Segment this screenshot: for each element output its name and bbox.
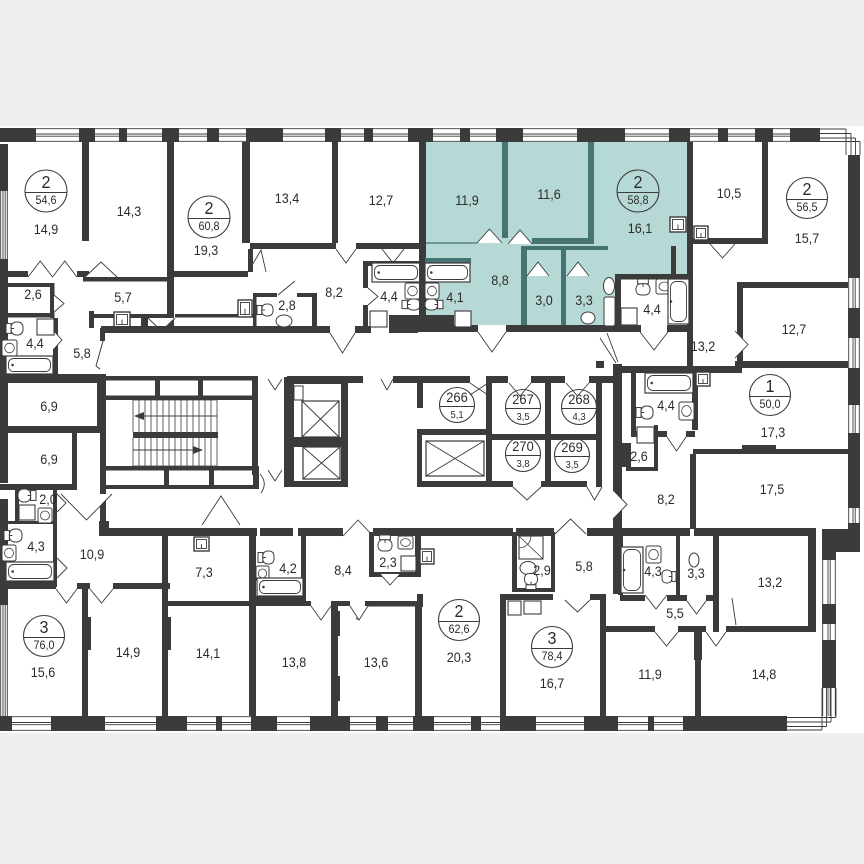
svg-text:12,7: 12,7: [369, 192, 393, 208]
svg-text:12,7: 12,7: [782, 321, 806, 337]
svg-text:11,9: 11,9: [638, 666, 662, 682]
svg-text:2: 2: [455, 601, 464, 621]
svg-text:62,6: 62,6: [448, 624, 469, 637]
svg-text:17,5: 17,5: [760, 481, 784, 497]
svg-text:4,2: 4,2: [279, 560, 297, 576]
svg-text:14,9: 14,9: [34, 221, 58, 237]
svg-text:4,4: 4,4: [380, 288, 398, 304]
svg-text:1: 1: [766, 376, 775, 396]
svg-text:2,8: 2,8: [278, 297, 296, 313]
svg-text:2,9: 2,9: [533, 562, 551, 578]
svg-text:76,0: 76,0: [33, 640, 54, 653]
svg-text:267: 267: [512, 392, 533, 408]
svg-text:3,3: 3,3: [575, 292, 593, 308]
svg-text:13,6: 13,6: [364, 654, 388, 670]
svg-text:15,6: 15,6: [31, 664, 55, 680]
svg-text:8,4: 8,4: [334, 562, 352, 578]
svg-text:13,4: 13,4: [275, 190, 299, 206]
svg-text:14,1: 14,1: [196, 645, 220, 661]
svg-text:58,8: 58,8: [627, 195, 648, 208]
svg-text:2,6: 2,6: [630, 448, 648, 464]
svg-text:7,3: 7,3: [195, 564, 213, 580]
svg-text:13,2: 13,2: [758, 574, 782, 590]
svg-text:4,4: 4,4: [26, 335, 44, 351]
svg-text:2,0: 2,0: [39, 491, 57, 507]
svg-text:14,3: 14,3: [117, 203, 141, 219]
svg-text:5,8: 5,8: [575, 558, 593, 574]
svg-text:8,2: 8,2: [325, 284, 343, 300]
svg-text:5,5: 5,5: [666, 605, 684, 621]
svg-text:2,3: 2,3: [379, 554, 397, 570]
svg-text:50,0: 50,0: [759, 399, 780, 412]
svg-text:3,5: 3,5: [516, 412, 530, 424]
svg-text:5,1: 5,1: [450, 410, 464, 422]
svg-text:13,8: 13,8: [282, 654, 306, 670]
svg-text:11,6: 11,6: [537, 186, 561, 202]
svg-text:4,3: 4,3: [27, 538, 45, 554]
svg-text:2: 2: [205, 198, 214, 218]
svg-text:270: 270: [512, 439, 533, 455]
svg-text:4,3: 4,3: [644, 563, 662, 579]
svg-text:16,7: 16,7: [540, 675, 564, 691]
svg-text:4,4: 4,4: [657, 397, 675, 413]
svg-text:3,5: 3,5: [565, 460, 579, 472]
svg-text:10,9: 10,9: [80, 546, 104, 562]
svg-text:3: 3: [40, 617, 49, 637]
svg-text:20,3: 20,3: [447, 649, 471, 665]
svg-text:269: 269: [561, 440, 582, 456]
svg-text:13,2: 13,2: [691, 338, 715, 354]
svg-text:78,4: 78,4: [541, 651, 563, 664]
svg-text:2,6: 2,6: [24, 286, 42, 302]
svg-text:6,9: 6,9: [40, 451, 58, 467]
svg-text:10,5: 10,5: [717, 185, 741, 201]
svg-text:5,8: 5,8: [73, 345, 91, 361]
svg-text:4,1: 4,1: [446, 289, 464, 305]
svg-text:2: 2: [42, 172, 51, 192]
svg-text:11,9: 11,9: [455, 192, 479, 208]
svg-text:8,2: 8,2: [657, 491, 675, 507]
svg-text:14,8: 14,8: [752, 666, 776, 682]
svg-text:15,7: 15,7: [795, 230, 819, 246]
svg-text:56,5: 56,5: [796, 202, 817, 215]
svg-text:2: 2: [803, 179, 812, 199]
svg-text:3,8: 3,8: [516, 459, 530, 471]
svg-text:14,9: 14,9: [116, 644, 140, 660]
svg-text:60,8: 60,8: [198, 221, 219, 234]
svg-text:268: 268: [568, 392, 589, 408]
svg-text:3: 3: [548, 628, 557, 648]
svg-text:266: 266: [446, 390, 467, 406]
svg-text:19,3: 19,3: [194, 242, 218, 258]
svg-text:6,9: 6,9: [40, 398, 58, 414]
svg-text:3,0: 3,0: [535, 292, 553, 308]
svg-text:4,4: 4,4: [643, 301, 661, 317]
svg-text:4,3: 4,3: [572, 412, 586, 424]
svg-text:16,1: 16,1: [628, 220, 652, 236]
svg-text:2: 2: [634, 172, 643, 192]
svg-text:3,3: 3,3: [687, 565, 705, 581]
svg-text:5,7: 5,7: [114, 289, 132, 305]
svg-text:17,3: 17,3: [761, 424, 785, 440]
svg-text:8,8: 8,8: [491, 272, 509, 288]
svg-text:54,6: 54,6: [35, 195, 56, 208]
